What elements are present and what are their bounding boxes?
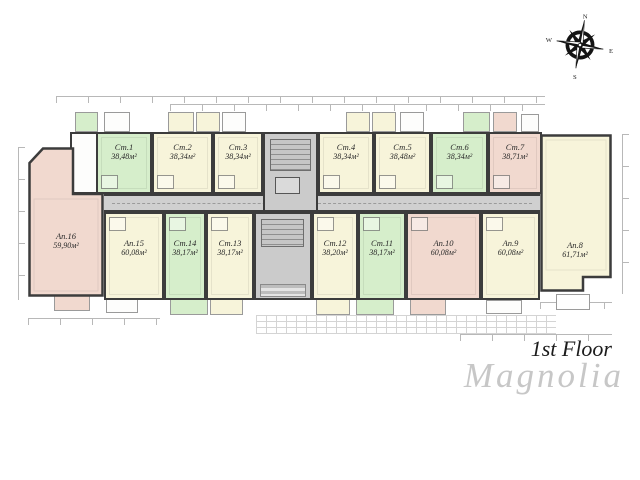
balcony [410, 298, 446, 315]
balcony [106, 298, 138, 313]
unit-st3: Ст.338,34м² [213, 132, 263, 194]
project-name: Magnolia [464, 356, 624, 396]
unit-label: Ст.238,34м² [170, 142, 196, 192]
balcony [493, 112, 517, 132]
unit-label: Ст.338,34м² [225, 142, 251, 192]
unit-label: Ап.960,08м² [498, 238, 524, 298]
unit-st14: Ст.1438,17м² [164, 212, 206, 300]
unit-label: Ст.1138,17м² [369, 238, 395, 298]
balcony [372, 112, 396, 132]
unit-label: Ст.138,48м² [111, 142, 137, 192]
stairs [270, 139, 311, 171]
unit-label: Ст.538,48м² [390, 142, 416, 192]
stairs [261, 219, 304, 247]
unit-st5: Ст.538,48м² [374, 132, 431, 194]
unit-label: Ст.438,34м² [333, 142, 359, 192]
unit-label: Ст.738,71м² [502, 142, 528, 192]
balcony [104, 112, 130, 132]
dimension-line [622, 134, 629, 294]
unit-st4: Ст.438,34м² [318, 132, 374, 194]
corridor [104, 194, 540, 212]
balcony [75, 112, 98, 132]
balcony [346, 112, 370, 132]
unit-label: Ап.1560,08м² [121, 238, 147, 298]
unit-label: Ст.1438,17м² [172, 238, 198, 298]
unit-st12: Ст.1238,20м² [312, 212, 358, 300]
unit-ap15: Ап.1560,08м² [104, 212, 164, 300]
unit-label: Ап.1060,08м² [431, 238, 457, 298]
unit-st13: Ст.1338,17м² [206, 212, 254, 300]
dimension-line [56, 96, 545, 103]
entrance-steps [260, 284, 306, 297]
balcony [400, 112, 424, 132]
unit-label: Ап.1659,90м² [30, 231, 102, 251]
unit-st2: Ст.238,34м² [152, 132, 213, 194]
balcony [210, 298, 243, 315]
balcony [521, 114, 539, 132]
terrace [556, 294, 590, 310]
balcony [486, 300, 522, 314]
compass-east-label: E [609, 48, 613, 55]
pavement-bricks [256, 315, 556, 334]
unit-st6: Ст.638,34м² [431, 132, 488, 194]
compass-south-label: S [573, 74, 577, 81]
balcony [222, 112, 246, 132]
unit-label: Ст.638,34м² [447, 142, 473, 192]
compass-west-label: W [546, 37, 553, 44]
unit-ap8 [540, 134, 612, 292]
floor-plan-canvas: N E S W Ап.1659,90м² Ап.861,71м² Ст.138,… [0, 0, 640, 480]
unit-st1: Ст.138,48м² [96, 132, 152, 194]
compass-north-label: N [583, 13, 588, 20]
unit-ap10: Ап.1060,08м² [406, 212, 481, 300]
compass-rose-icon: N E S W [543, 8, 617, 82]
elevator [275, 177, 300, 194]
dimension-line [170, 104, 545, 111]
dimension-line [28, 318, 160, 325]
unit-label: Ап.861,71м² [542, 240, 608, 260]
unit-label: Ст.1238,20м² [322, 238, 348, 298]
unit-ap9: Ап.960,08м² [481, 212, 540, 300]
balcony [316, 298, 350, 315]
balcony [170, 298, 208, 315]
balcony [196, 112, 220, 132]
unit-label: Ст.1338,17м² [217, 238, 243, 298]
dimension-line [18, 147, 25, 300]
unit-st11: Ст.1138,17м² [358, 212, 406, 300]
balcony [356, 298, 394, 315]
unit-ap16 [28, 147, 104, 297]
balcony [463, 112, 490, 132]
balcony [168, 112, 194, 132]
unit-st7: Ст.738,71м² [488, 132, 542, 194]
